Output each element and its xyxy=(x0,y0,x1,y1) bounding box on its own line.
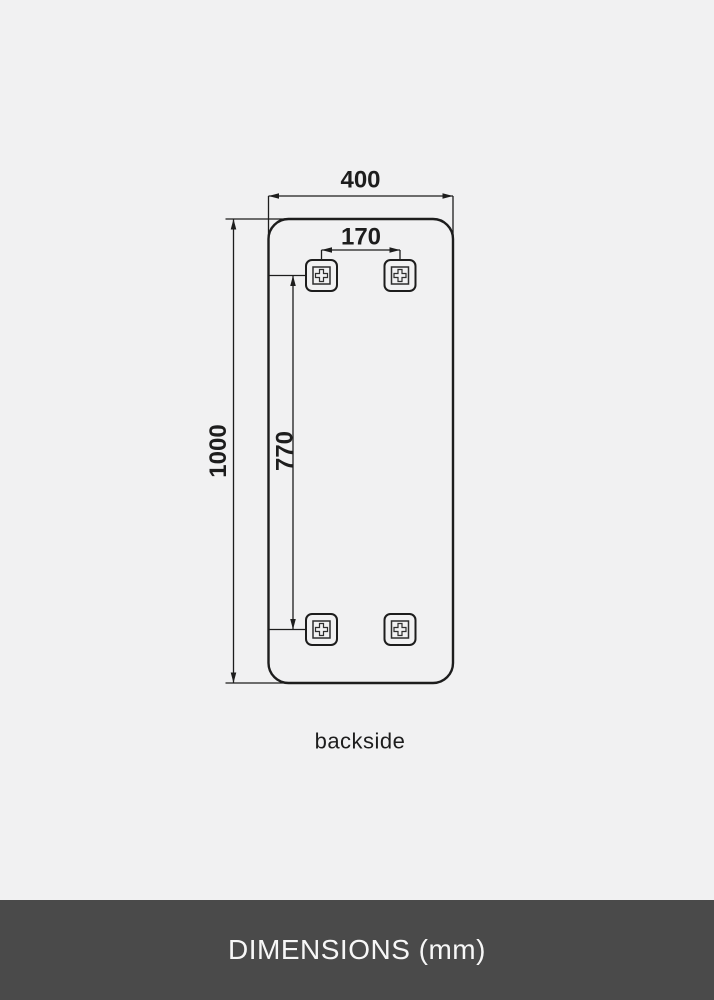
arrowhead-left-icon xyxy=(322,247,333,253)
backside-caption: backside xyxy=(315,729,406,754)
technical-drawing: 400 170 1000 770 xyxy=(0,0,714,900)
hole-spacing-dimension: 170 xyxy=(322,223,401,261)
screw-bracket-top-left xyxy=(306,260,337,291)
bracket-outline xyxy=(306,260,337,291)
footer-title: DIMENSIONS (mm) xyxy=(228,934,486,966)
arrowhead-bottom-icon xyxy=(290,619,296,630)
arrowhead-top-icon xyxy=(231,219,237,230)
height-dimension-label: 1000 xyxy=(205,424,232,477)
arrowhead-left-icon xyxy=(269,193,280,199)
hole-span-dimension: 770 xyxy=(269,276,307,630)
hole-span-dimension-label: 770 xyxy=(271,431,298,471)
bracket-outline xyxy=(306,614,337,645)
width-dimension-label: 400 xyxy=(340,166,380,193)
arrowhead-top-icon xyxy=(290,276,296,287)
bracket-outline xyxy=(385,260,416,291)
bracket-outline xyxy=(385,614,416,645)
arrowhead-right-icon xyxy=(390,247,401,253)
screw-bracket-bottom-left xyxy=(306,614,337,645)
arrowhead-bottom-icon xyxy=(231,673,237,684)
footer-bar: DIMENSIONS (mm) xyxy=(0,900,714,1000)
product-dimension-page: 400 170 1000 770 xyxy=(0,0,714,1000)
arrowhead-right-icon xyxy=(443,193,454,199)
hole-spacing-dimension-label: 170 xyxy=(341,223,381,250)
screw-bracket-top-right xyxy=(385,260,416,291)
screw-bracket-bottom-right xyxy=(385,614,416,645)
